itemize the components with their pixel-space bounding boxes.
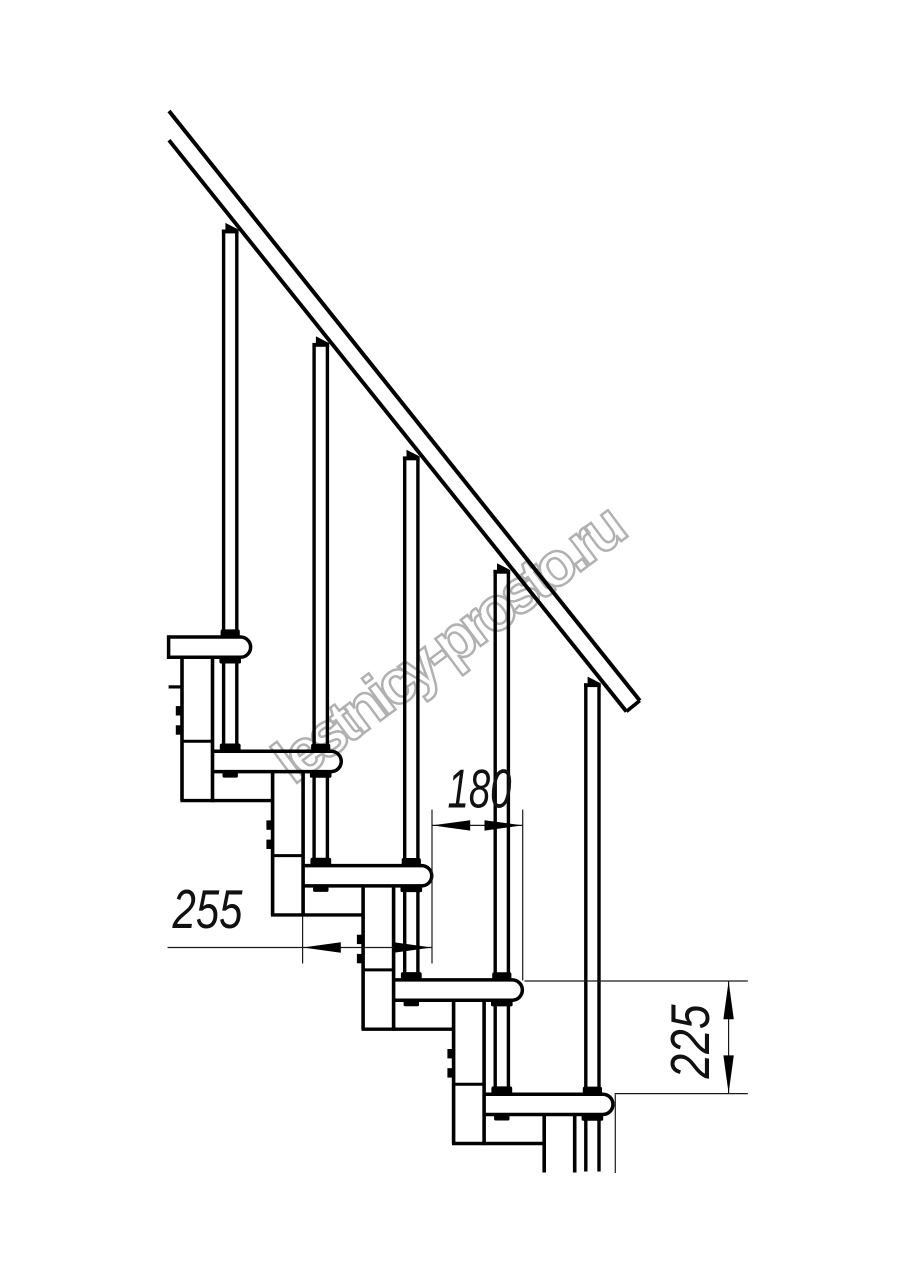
svg-text:225: 225: [659, 1004, 721, 1079]
svg-text:255: 255: [172, 878, 243, 940]
svg-text:180: 180: [448, 758, 512, 820]
